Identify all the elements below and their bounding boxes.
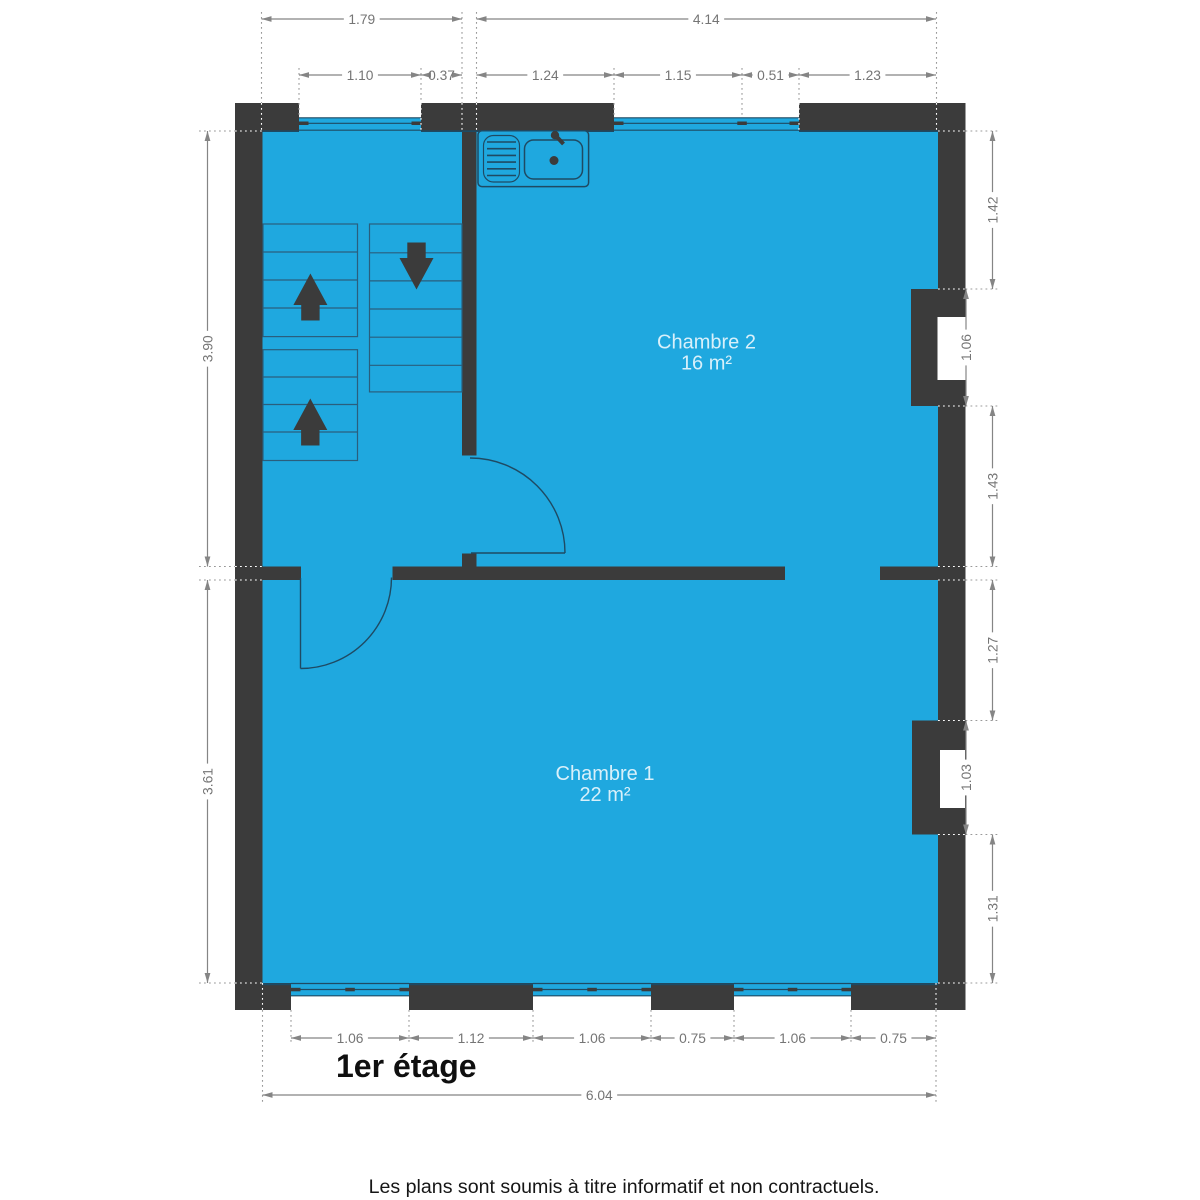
svg-text:0.51: 0.51: [757, 68, 784, 83]
svg-text:16 m²: 16 m²: [681, 353, 732, 375]
svg-text:3.61: 3.61: [200, 768, 215, 795]
svg-text:1.12: 1.12: [458, 1031, 485, 1046]
svg-text:0.75: 0.75: [880, 1031, 907, 1046]
svg-text:4.14: 4.14: [693, 12, 720, 27]
svg-text:Chambre 1: Chambre 1: [556, 763, 655, 785]
svg-text:1.27: 1.27: [985, 637, 1000, 664]
svg-text:1er étage: 1er étage: [336, 1048, 477, 1084]
svg-text:22 m²: 22 m²: [579, 784, 630, 806]
svg-text:3.90: 3.90: [200, 335, 215, 362]
svg-text:0.37: 0.37: [428, 68, 455, 83]
svg-text:6.04: 6.04: [586, 1088, 613, 1103]
svg-text:1.42: 1.42: [985, 197, 1000, 224]
svg-text:1.79: 1.79: [348, 12, 375, 27]
svg-text:1.31: 1.31: [985, 895, 1000, 922]
svg-text:Les plans sont soumis à titre: Les plans sont soumis à titre informatif…: [369, 1176, 880, 1198]
svg-text:1.03: 1.03: [959, 764, 974, 791]
svg-text:0.75: 0.75: [679, 1031, 706, 1046]
svg-text:1.43: 1.43: [985, 473, 1000, 500]
svg-text:1.06: 1.06: [579, 1031, 606, 1046]
svg-text:1.15: 1.15: [665, 68, 692, 83]
svg-text:1.10: 1.10: [347, 68, 374, 83]
svg-text:1.06: 1.06: [959, 334, 974, 361]
svg-text:Chambre 2: Chambre 2: [657, 332, 756, 354]
svg-text:1.24: 1.24: [532, 68, 559, 83]
svg-text:1.23: 1.23: [854, 68, 881, 83]
svg-text:1.06: 1.06: [337, 1031, 364, 1046]
svg-text:1.06: 1.06: [779, 1031, 806, 1046]
